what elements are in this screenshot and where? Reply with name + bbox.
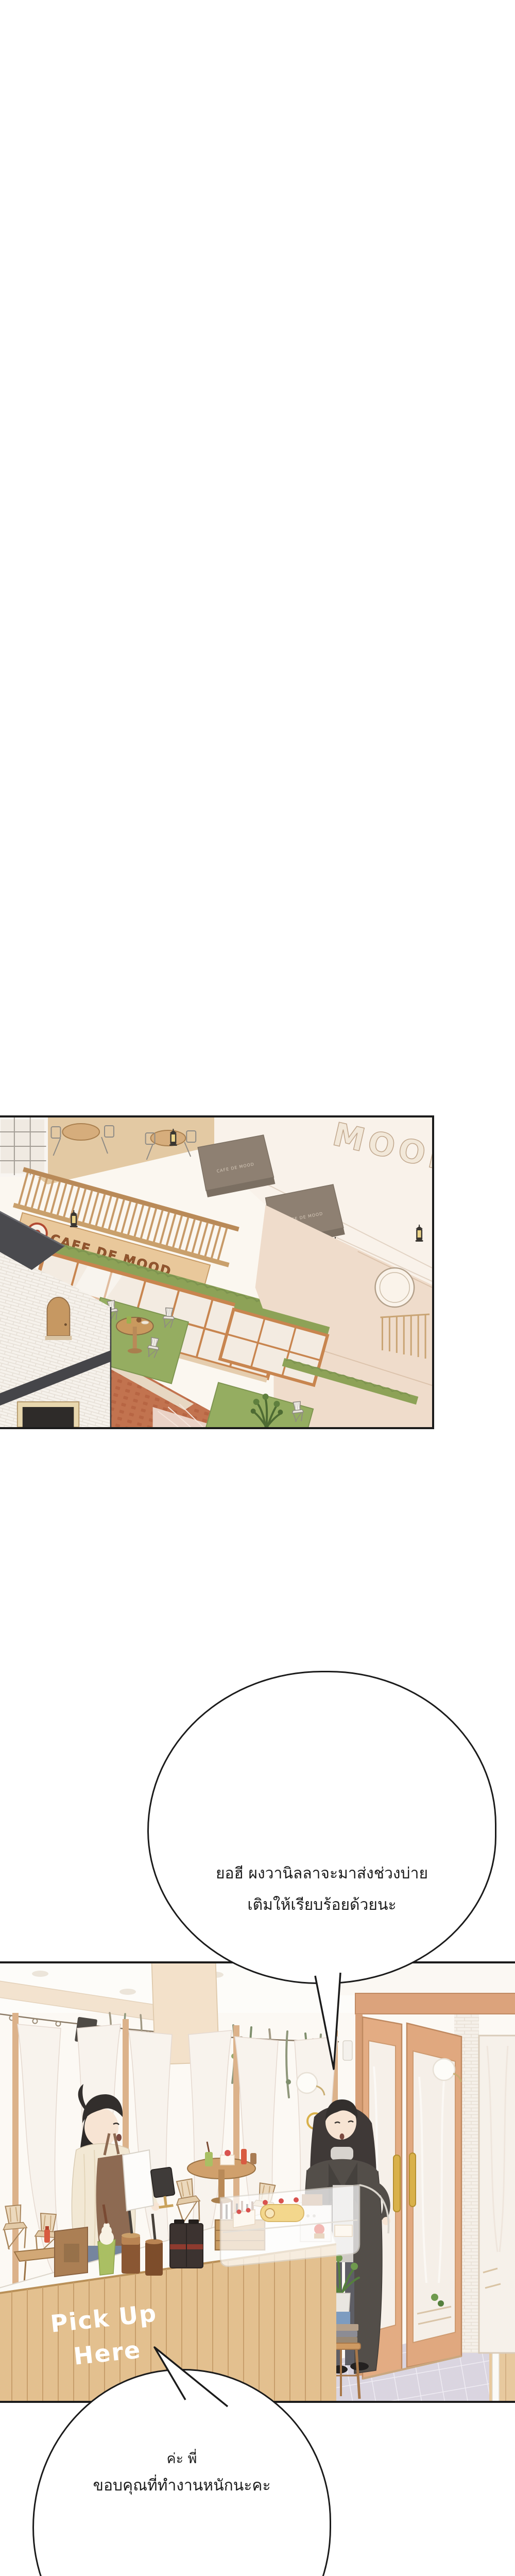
panel-cafe-exterior: MOOD — [0, 1115, 434, 1429]
corner-window — [0, 1117, 46, 1175]
door-header — [355, 1993, 515, 2014]
menu-card — [123, 2150, 153, 2211]
bubble1-line2: เติมให้เรียบร้อยด้วยนะ — [247, 1896, 396, 1914]
door-handle-icon — [409, 2153, 416, 2207]
speech-bubble-2-tail — [139, 2339, 242, 2416]
webtoon-page: MOOD — [0, 0, 515, 2576]
speech-bubble-1: ยอฮี ผงวานิลลาจะมาส่งช่วงบ่าย เติมให้เรี… — [147, 1671, 496, 1984]
interior-illustration: Pick Up Here — [0, 1963, 515, 2401]
speech-bubble-1-tail — [301, 1965, 353, 2076]
sidelight-window — [479, 2036, 515, 2353]
bubble2-line1: ค่ะ พี่ — [167, 2451, 197, 2467]
exterior-illustration: MOOD — [0, 1117, 432, 1427]
round-sign — [375, 1268, 415, 1307]
door-handle-icon — [393, 2155, 400, 2212]
bubble1-line1: ยอฮี ผงวานิลลาจะมาส่งช่วงบ่าย — [216, 1865, 428, 1883]
panel-cafe-interior: Pick Up Here — [0, 1961, 515, 2403]
bubble2-line2: ขอบคุณที่ทำงานหนักนะคะ — [93, 2477, 270, 2495]
